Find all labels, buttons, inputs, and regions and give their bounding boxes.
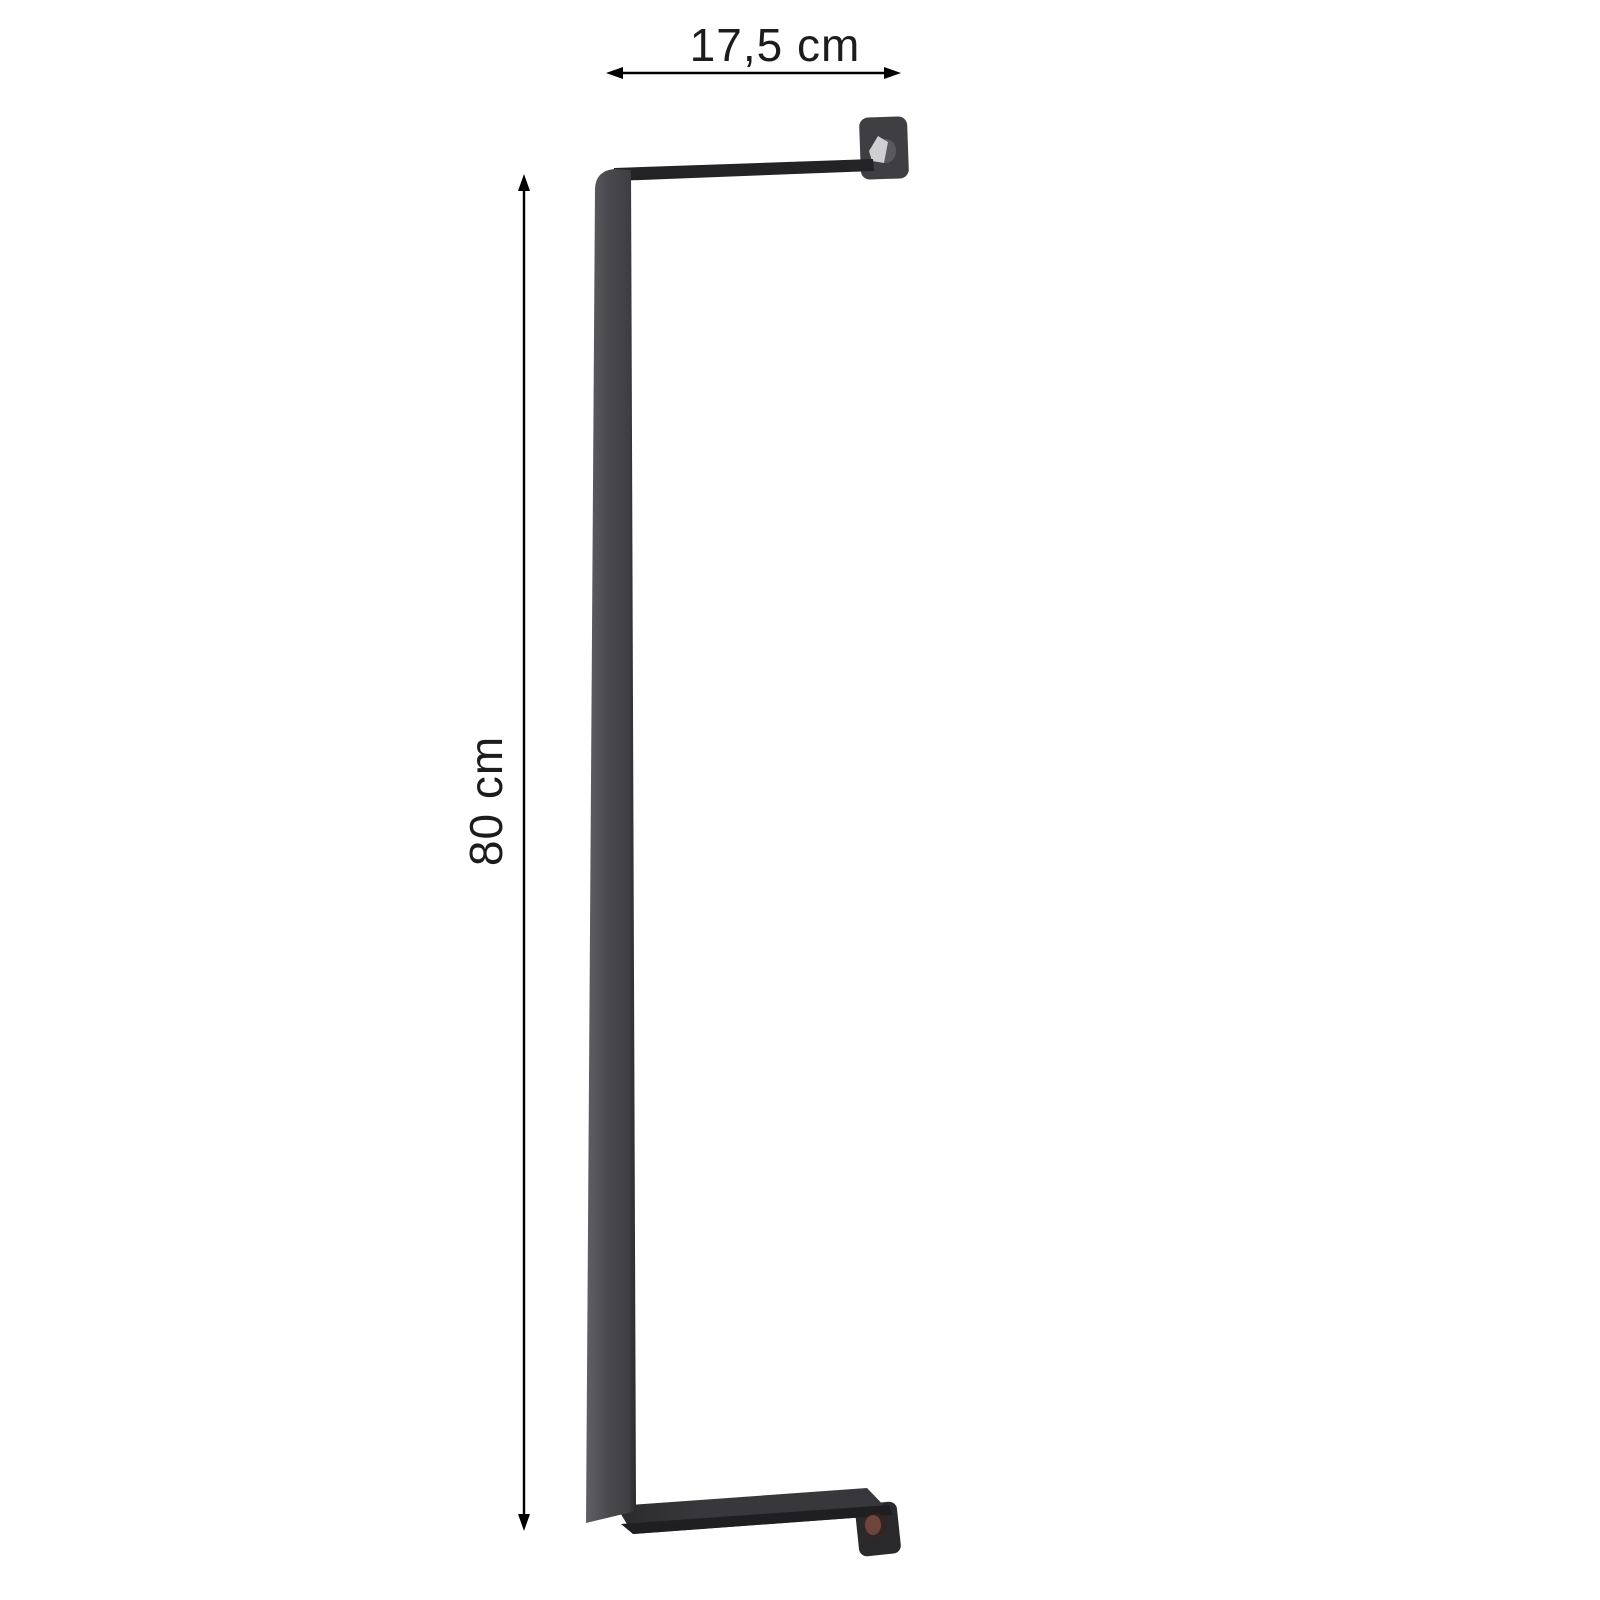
dimension-annotations — [0, 0, 1600, 1600]
height-dimension-label: 80 cm — [463, 736, 509, 866]
dimension-diagram-canvas: 17,5 cm 80 cm — [0, 0, 1600, 1600]
width-dimension-label: 17,5 cm — [690, 22, 861, 68]
height-dimension-arrow-icon — [518, 174, 530, 1531]
